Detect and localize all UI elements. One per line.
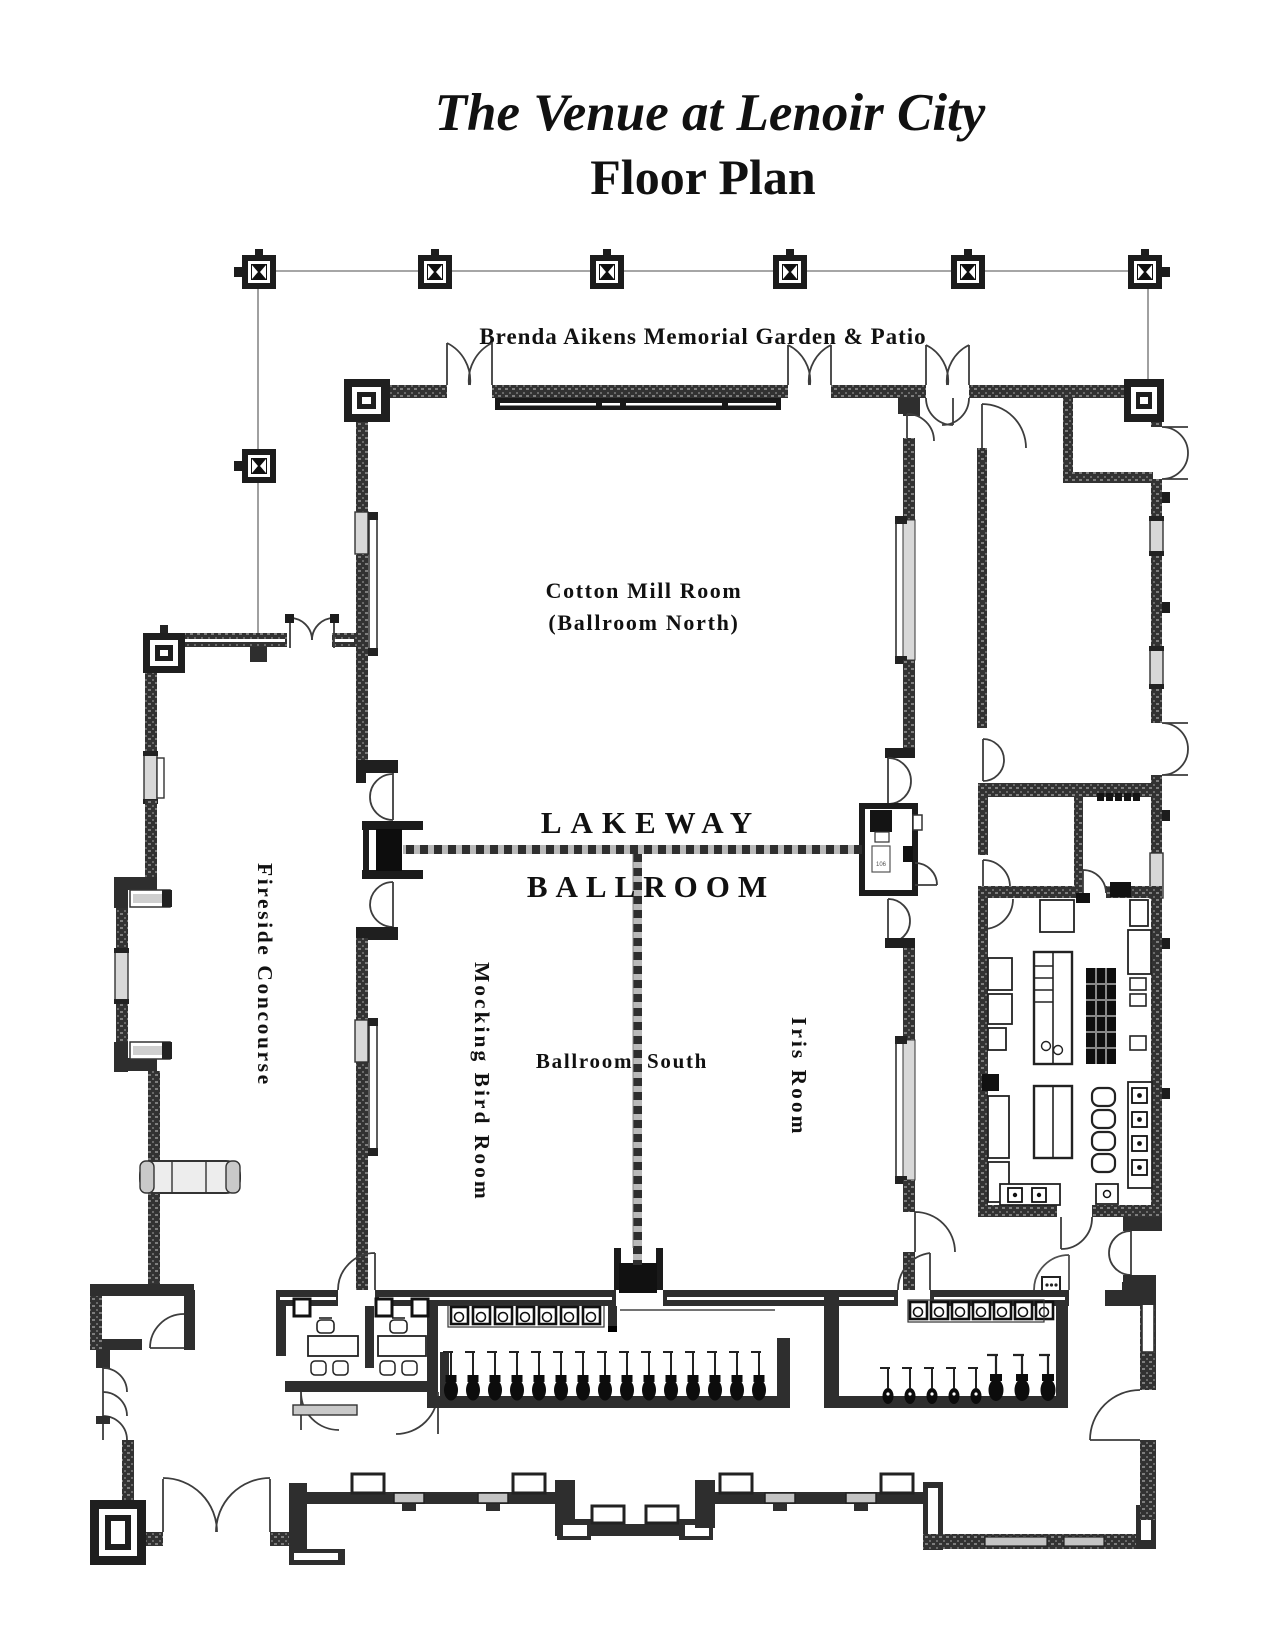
svg-text:Cotton Mill Room: Cotton Mill Room [546,578,743,603]
svg-text:Ballroom South: Ballroom South [536,1049,708,1073]
svg-text:The Venue at Lenoir City: The Venue at Lenoir City [435,84,986,142]
svg-text:Brenda Aikens Memorial Garden: Brenda Aikens Memorial Garden & Patio [479,324,926,349]
svg-text:Fireside Concourse: Fireside Concourse [253,863,277,1087]
svg-text:BALLROOM: BALLROOM [527,869,775,904]
svg-text:106: 106 [876,862,887,868]
svg-text:Floor Plan: Floor Plan [590,149,816,205]
svg-text:LAKEWAY: LAKEWAY [541,805,761,840]
svg-text:(Ballroom North): (Ballroom North) [548,610,739,635]
svg-text:Mocking Bird Room: Mocking Bird Room [470,962,494,1202]
svg-text:Iris Room: Iris Room [787,1017,811,1137]
